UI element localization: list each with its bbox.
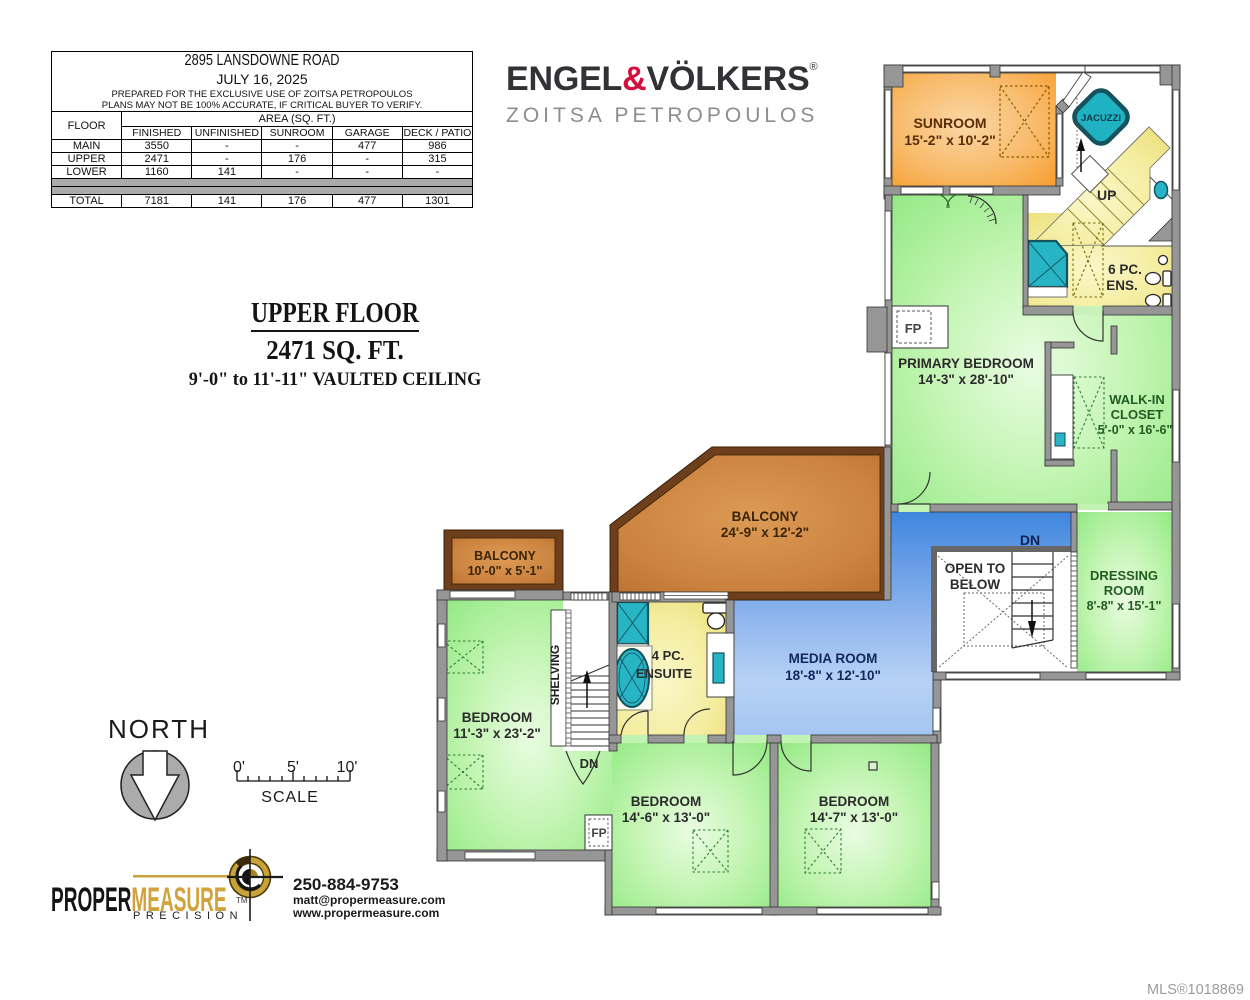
svg-text:18'-8" x 12'-10": 18'-8" x 12'-10" [785,668,881,683]
svg-text:SCALE: SCALE [261,789,318,806]
svg-text:UP: UP [1097,187,1116,203]
svg-text:14'-3" x 28'-10": 14'-3" x 28'-10" [918,372,1014,387]
svg-text:ROOM: ROOM [1104,583,1144,598]
svg-text:matt@propermeasure.com: matt@propermeasure.com [293,893,445,907]
svg-text:5': 5' [287,759,299,776]
svg-text:BELOW: BELOW [950,577,1001,592]
svg-text:14'-7" x 13'-0": 14'-7" x 13'-0" [810,810,898,825]
svg-text:MEDIA ROOM: MEDIA ROOM [789,651,878,666]
svg-text:CLOSET: CLOSET [1111,407,1164,422]
svg-text:10'-0" x 5'-1": 10'-0" x 5'-1" [468,564,543,578]
svg-text:ENS.: ENS. [1106,278,1138,293]
svg-text:FP: FP [591,826,606,840]
svg-text:PRIMARY BEDROOM: PRIMARY BEDROOM [898,356,1034,371]
svg-text:10': 10' [337,759,358,776]
svg-text:5'-0" x 16'-6": 5'-0" x 16'-6" [1098,423,1173,437]
svg-text:OPEN TO: OPEN TO [945,561,1006,576]
svg-text:SHELVING: SHELVING [548,645,562,705]
svg-text:DN: DN [1020,532,1040,548]
svg-text:ENSUITE: ENSUITE [636,666,693,681]
svg-text:DN: DN [580,756,599,771]
svg-text:8'-8" x 15'-1": 8'-8" x 15'-1" [1087,599,1162,613]
svg-text:4 PC.: 4 PC. [652,648,685,663]
svg-text:6 PC.: 6 PC. [1108,262,1142,277]
svg-text:11'-3" x 23'-2": 11'-3" x 23'-2" [453,726,541,741]
svg-text:BEDROOM: BEDROOM [819,794,890,809]
svg-text:NORTH: NORTH [108,714,210,744]
svg-text:JACUZZI: JACUZZI [1081,113,1121,124]
svg-text:14'-6" x 13'-0": 14'-6" x 13'-0" [622,810,710,825]
svg-text:DRESSING: DRESSING [1090,568,1158,583]
svg-text:BALCONY: BALCONY [474,549,536,563]
svg-text:BALCONY: BALCONY [732,509,799,524]
svg-text:15'-2" x 10'-2": 15'-2" x 10'-2" [904,132,996,148]
svg-text:WALK-IN: WALK-IN [1109,392,1165,407]
svg-text:BEDROOM: BEDROOM [631,794,702,809]
svg-text:www.propermeasure.com: www.propermeasure.com [292,906,439,920]
svg-text:SUNROOM: SUNROOM [913,115,986,131]
svg-text:BEDROOM: BEDROOM [462,710,533,725]
svg-text:FP: FP [905,321,922,336]
svg-text:0': 0' [233,759,245,776]
svg-text:PRECISION: PRECISION [133,910,243,922]
svg-text:250-884-9753: 250-884-9753 [293,875,399,894]
svg-text:24'-9" x 12'-2": 24'-9" x 12'-2" [721,525,809,540]
